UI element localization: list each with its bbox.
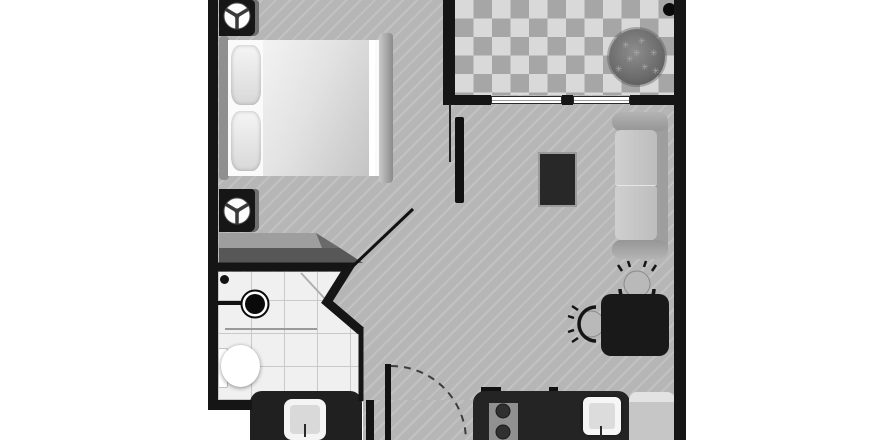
floor-plan: ✳✳✳ ✳✳✳ ✳✳	[0, 0, 890, 440]
svg-text:✳: ✳	[641, 63, 649, 73]
overlay-graphics: ✳✳✳ ✳✳✳ ✳✳	[0, 0, 890, 440]
entry-door-swing-arc	[391, 366, 466, 440]
svg-text:✳: ✳	[652, 67, 660, 77]
burner	[496, 404, 510, 418]
bathroom-basin	[242, 291, 269, 318]
fan-icon	[224, 3, 250, 29]
plant-foliage-stars: ✳✳✳ ✳✳✳ ✳✳	[615, 37, 660, 77]
svg-text:✳: ✳	[638, 37, 646, 47]
fan-icon	[224, 198, 250, 224]
svg-text:✳: ✳	[622, 41, 630, 51]
svg-text:✳: ✳	[633, 49, 641, 59]
interior-door-leaf	[455, 117, 464, 203]
svg-text:✳: ✳	[650, 49, 658, 59]
bedroom-door-leaf	[352, 209, 413, 267]
entry-door-leaf	[385, 364, 391, 440]
burner	[496, 425, 510, 439]
bathroom-wall-zigzag	[212, 267, 361, 331]
svg-text:✳: ✳	[615, 65, 623, 75]
